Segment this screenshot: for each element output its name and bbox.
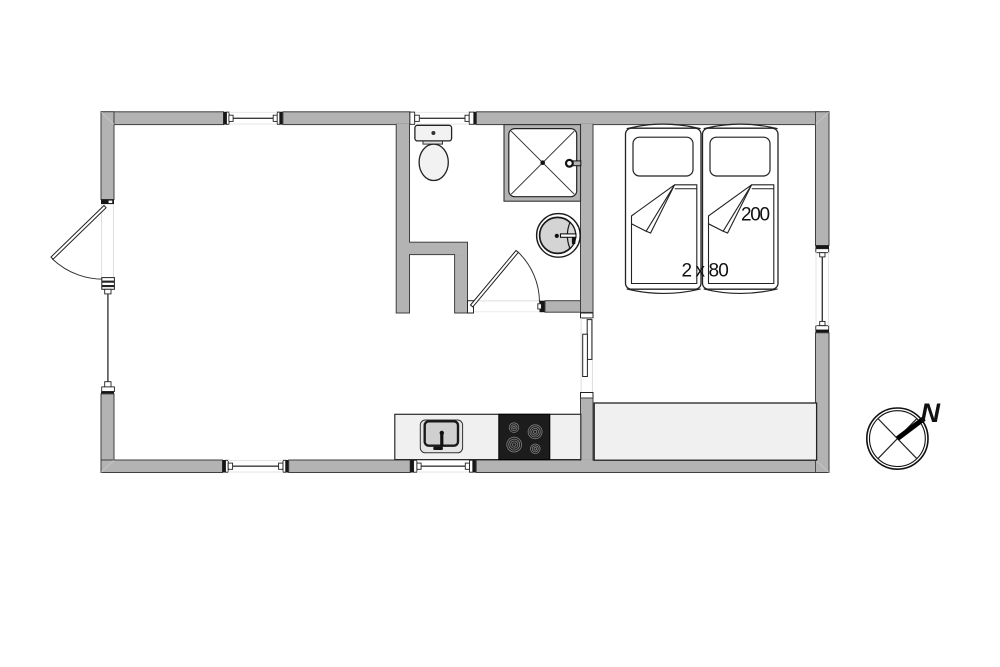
svg-text:2 x 80: 2 x 80: [682, 261, 729, 282]
svg-text:N: N: [921, 398, 941, 428]
svg-text:200: 200: [741, 205, 770, 226]
